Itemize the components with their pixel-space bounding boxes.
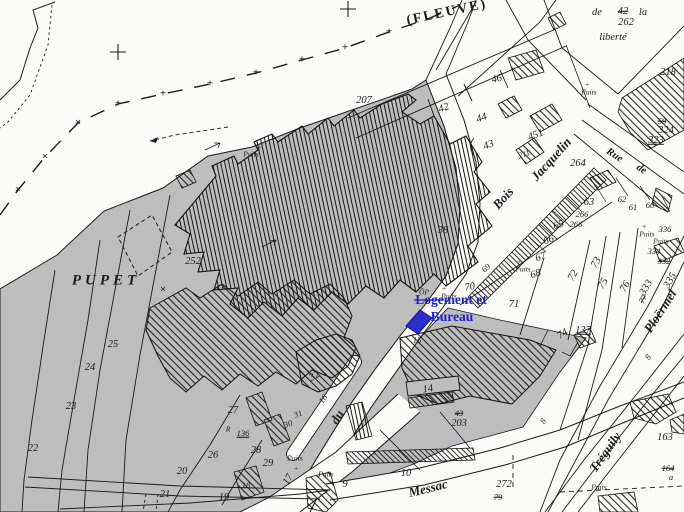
map-linework xyxy=(0,0,684,512)
survey-cross-large xyxy=(110,44,126,60)
annotation-line2: Bureau xyxy=(431,309,474,325)
annotation-line1: Logement et xyxy=(415,292,487,308)
cadastral-map: (FLEUVE)PUPET+++++++××××de42la262liberté… xyxy=(0,0,684,512)
survey-cross-large xyxy=(340,1,356,17)
building-second-hatched xyxy=(146,280,360,392)
